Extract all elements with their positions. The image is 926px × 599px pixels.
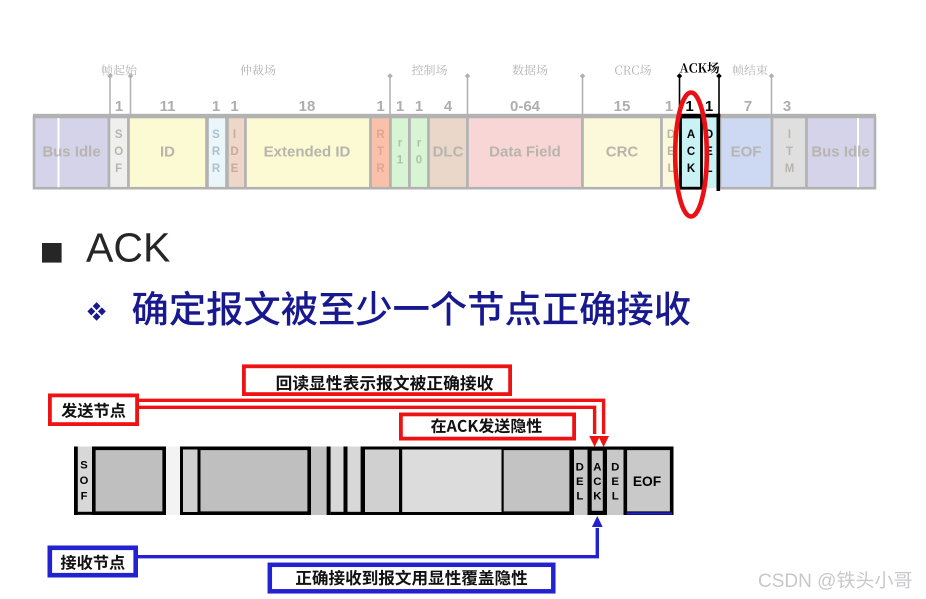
svg-text:Bus Idle: Bus Idle [42,144,100,161]
svg-text:1: 1 [396,98,404,115]
svg-text:K: K [593,491,602,503]
svg-text:Extended ID: Extended ID [264,144,351,161]
svg-text:S: S [212,129,220,141]
svg-text:R: R [376,163,385,175]
svg-text:1: 1 [397,154,404,166]
svg-text:R: R [376,129,385,141]
svg-text:S: S [115,129,123,141]
svg-text:ACK: ACK [86,225,170,271]
svg-text:A: A [687,129,695,141]
svg-text:1: 1 [705,98,713,115]
svg-text:D: D [576,461,584,473]
svg-text:11: 11 [160,98,176,115]
svg-text:EOF: EOF [633,474,661,489]
svg-text:C: C [687,146,695,158]
svg-text:0-64: 0-64 [510,98,541,115]
svg-text:0: 0 [416,154,422,166]
svg-text:r: r [398,137,403,149]
svg-text:1: 1 [115,98,123,115]
svg-text:Data Field: Data Field [489,144,561,161]
svg-text:1: 1 [665,98,673,115]
svg-text:1: 1 [212,98,220,115]
svg-text:E: E [231,163,239,175]
svg-text:D: D [230,146,238,158]
svg-text:R: R [212,146,221,158]
svg-text:D: D [611,461,619,473]
svg-text:7: 7 [744,98,752,115]
svg-text:Bus Idle: Bus Idle [811,144,869,161]
svg-text:r: r [417,137,422,149]
svg-text:4: 4 [444,98,453,115]
svg-text:F: F [115,163,122,175]
svg-text:T: T [786,146,793,158]
svg-text:15: 15 [614,98,631,115]
svg-text:F: F [81,491,88,503]
svg-text:C: C [593,476,601,488]
svg-text:3: 3 [783,98,791,115]
svg-text:I: I [233,129,236,141]
svg-text:L: L [612,491,619,503]
svg-text:DLC: DLC [433,144,464,161]
svg-text:1: 1 [685,98,693,115]
svg-text:18: 18 [299,98,316,115]
svg-text:1: 1 [230,98,238,115]
svg-text:L: L [576,491,583,503]
svg-text:O: O [114,146,123,158]
svg-text:ID: ID [160,144,175,161]
svg-text:S: S [80,459,88,471]
svg-text:E: E [576,476,584,488]
svg-text:1: 1 [415,98,423,115]
svg-text:K: K [687,163,696,175]
svg-text:E: E [611,476,619,488]
svg-text:A: A [593,461,601,473]
svg-text:CRC: CRC [606,144,639,161]
svg-text:I: I [788,129,791,141]
svg-text:R: R [212,163,221,175]
svg-text:CSDN @: CSDN @ [758,571,836,592]
svg-text:1: 1 [376,98,384,115]
svg-text:EOF: EOF [731,144,762,161]
svg-text:O: O [80,475,89,487]
svg-text:T: T [377,146,384,158]
svg-text:M: M [785,163,795,175]
